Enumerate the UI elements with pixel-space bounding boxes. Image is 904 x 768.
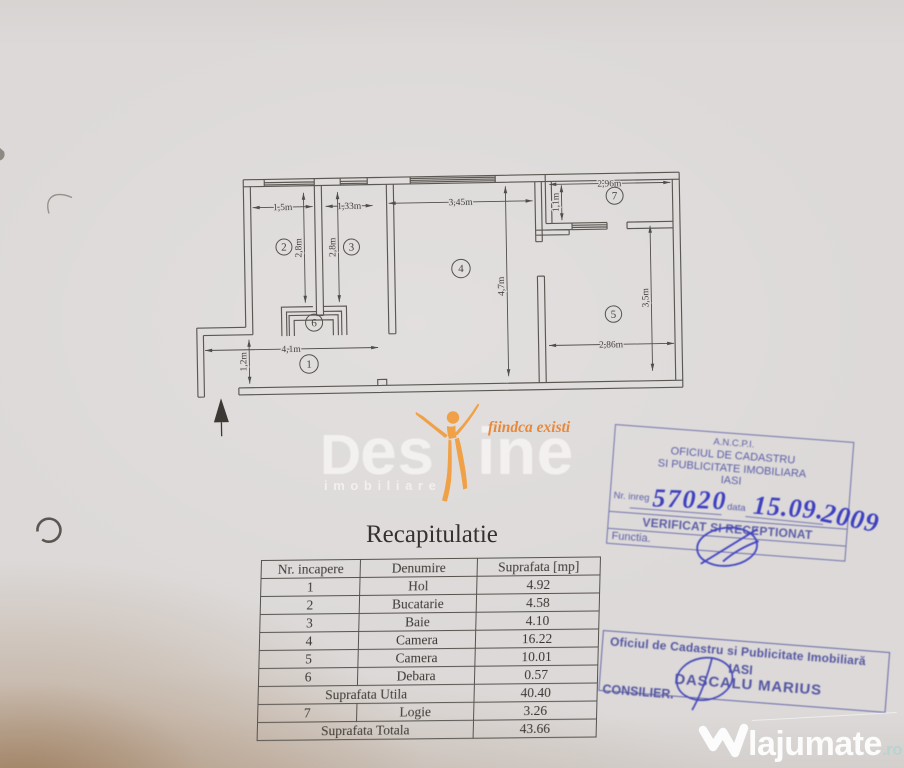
svg-text:2,8m: 2,8m (294, 238, 304, 258)
svg-text:3: 3 (349, 242, 355, 254)
svg-text:2: 2 (281, 242, 287, 254)
svg-text:4,1m: 4,1m (281, 345, 301, 355)
svg-text:3,5m: 3,5m (641, 287, 651, 307)
svg-text:1,2m: 1,2m (239, 352, 249, 372)
svg-text:7: 7 (612, 190, 618, 202)
svg-text:2,8m: 2,8m (328, 237, 338, 257)
svg-text:3,45m: 3,45m (449, 198, 474, 208)
svg-text:6: 6 (311, 317, 317, 329)
svg-text:1,1m: 1,1m (551, 192, 561, 212)
svg-text:4: 4 (458, 263, 464, 275)
svg-text:5: 5 (611, 309, 617, 321)
svg-text:1,33m: 1,33m (337, 202, 362, 212)
svg-text:1,5m: 1,5m (273, 203, 293, 213)
svg-text:1: 1 (306, 359, 312, 371)
svg-text:2,86m: 2,86m (599, 340, 624, 350)
svg-text:4,7m: 4,7m (497, 276, 507, 296)
